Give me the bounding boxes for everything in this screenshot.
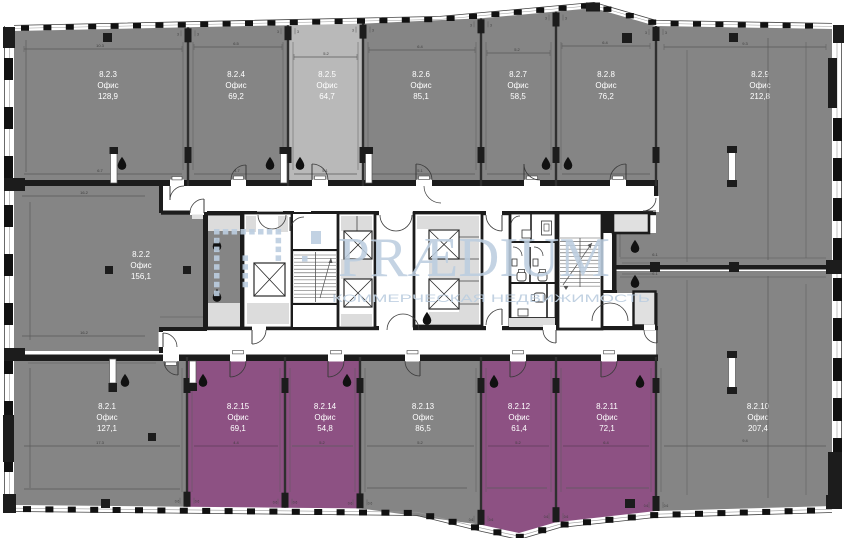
svg-text:0.6: 0.6 [348, 501, 353, 505]
svg-text:8.2.11: 8.2.11 [596, 402, 618, 411]
svg-text:8.2.9: 8.2.9 [751, 70, 769, 79]
svg-text:3: 3 [197, 32, 199, 36]
svg-text:8.2.7: 8.2.7 [509, 70, 527, 79]
svg-text:0.6: 0.6 [644, 504, 649, 508]
svg-text:3: 3 [470, 23, 472, 27]
svg-text:0.6: 0.6 [368, 501, 373, 505]
svg-text:Офис: Офис [412, 413, 433, 422]
svg-text:Офис: Офис [225, 81, 246, 90]
svg-text:127,1: 127,1 [97, 424, 118, 433]
svg-text:86,5: 86,5 [415, 424, 431, 433]
svg-text:10.3: 10.3 [96, 43, 105, 48]
svg-text:Офис: Офис [595, 81, 616, 90]
svg-text:58,5: 58,5 [510, 92, 526, 101]
svg-text:6.4: 6.4 [602, 40, 608, 45]
svg-text:61,4: 61,4 [511, 424, 527, 433]
svg-text:72,1: 72,1 [599, 424, 615, 433]
svg-text:16.2: 16.2 [80, 330, 89, 335]
svg-text:Офис: Офис [314, 413, 335, 422]
svg-text:КОММЕРЧЕСКАЯ НЕДВИЖИМОСТЬ: КОММЕРЧЕСКАЯ НЕДВИЖИМОСТЬ [332, 293, 650, 305]
svg-text:85,1: 85,1 [413, 92, 429, 101]
svg-text:5.2: 5.2 [417, 440, 423, 445]
svg-text:3: 3 [372, 29, 374, 33]
svg-text:8.2.4: 8.2.4 [227, 70, 245, 79]
svg-text:16.2: 16.2 [80, 190, 89, 195]
svg-text:Офис: Офис [130, 261, 151, 270]
svg-text:6.4: 6.4 [417, 44, 423, 49]
svg-text:0.6: 0.6 [469, 518, 474, 522]
svg-text:Офис: Офис [749, 81, 770, 90]
svg-text:3: 3 [565, 17, 567, 21]
svg-text:8.2.13: 8.2.13 [412, 402, 435, 411]
svg-text:212,8: 212,8 [750, 92, 771, 101]
svg-text:69,2: 69,2 [228, 92, 244, 101]
svg-text:4.4: 4.4 [233, 440, 239, 445]
svg-text:Офис: Офис [747, 413, 768, 422]
svg-text:8.2.10: 8.2.10 [747, 402, 770, 411]
svg-text:9.4: 9.4 [742, 438, 748, 443]
svg-text:207,4: 207,4 [748, 424, 769, 433]
svg-text:5.2: 5.2 [323, 51, 329, 56]
svg-text:54,8: 54,8 [317, 424, 333, 433]
svg-text:8.2.5: 8.2.5 [318, 70, 336, 79]
svg-text:6.4: 6.4 [603, 440, 609, 445]
svg-text:Офис: Офис [410, 81, 431, 90]
svg-text:6.7: 6.7 [97, 168, 103, 173]
svg-text:4.7: 4.7 [234, 168, 240, 173]
svg-text:Офис: Офис [507, 81, 528, 90]
svg-text:8.2.6: 8.2.6 [412, 70, 430, 79]
svg-text:0.6: 0.6 [195, 500, 200, 504]
svg-text:64,7: 64,7 [319, 92, 335, 101]
svg-text:6.1: 6.1 [652, 252, 658, 257]
svg-text:128,9: 128,9 [98, 92, 119, 101]
svg-text:0.6: 0.6 [664, 504, 669, 508]
svg-text:Офис: Офис [508, 413, 529, 422]
svg-text:3: 3 [297, 30, 299, 34]
svg-text:8.2.12: 8.2.12 [508, 402, 531, 411]
svg-text:3: 3 [490, 23, 492, 27]
svg-text:Офис: Офис [596, 413, 617, 422]
svg-text:3: 3 [352, 29, 354, 33]
svg-text:PRÆDIUM: PRÆDIUM [338, 227, 610, 289]
svg-text:Офис: Офис [96, 413, 117, 422]
svg-text:0.6: 0.6 [564, 515, 569, 519]
svg-text:8.2.3: 8.2.3 [99, 70, 117, 79]
svg-text:Офис: Офис [97, 81, 118, 90]
svg-text:17.3: 17.3 [96, 440, 105, 445]
svg-text:0.6: 0.6 [175, 500, 180, 504]
svg-text:9.3: 9.3 [742, 41, 748, 46]
svg-text:3: 3 [177, 32, 179, 36]
svg-text:5.2: 5.2 [515, 440, 521, 445]
svg-text:Офис: Офис [227, 413, 248, 422]
svg-text:0.6: 0.6 [544, 515, 549, 519]
svg-text:8.2.14: 8.2.14 [314, 402, 337, 411]
svg-text:8.2.8: 8.2.8 [597, 70, 615, 79]
svg-text:5.2: 5.2 [514, 47, 520, 52]
svg-text:6.5: 6.5 [233, 41, 239, 46]
svg-text:3: 3 [277, 30, 279, 34]
svg-text:156,1: 156,1 [131, 272, 152, 281]
svg-text:3: 3 [645, 31, 647, 35]
svg-text:5.1: 5.1 [417, 168, 423, 173]
svg-text:5.2: 5.2 [319, 440, 325, 445]
svg-text:3: 3 [665, 31, 667, 35]
svg-text:8.2.1: 8.2.1 [98, 402, 116, 411]
svg-text:3: 3 [545, 17, 547, 21]
svg-text:8.2.15: 8.2.15 [227, 402, 250, 411]
svg-text:69,1: 69,1 [230, 424, 246, 433]
svg-text:8.2.2: 8.2.2 [132, 250, 150, 259]
svg-text:0.6: 0.6 [293, 501, 298, 505]
svg-text:0.6: 0.6 [273, 501, 278, 505]
svg-text:76,2: 76,2 [598, 92, 614, 101]
svg-text:Офис: Офис [316, 81, 337, 90]
svg-text:0.6: 0.6 [489, 518, 494, 522]
